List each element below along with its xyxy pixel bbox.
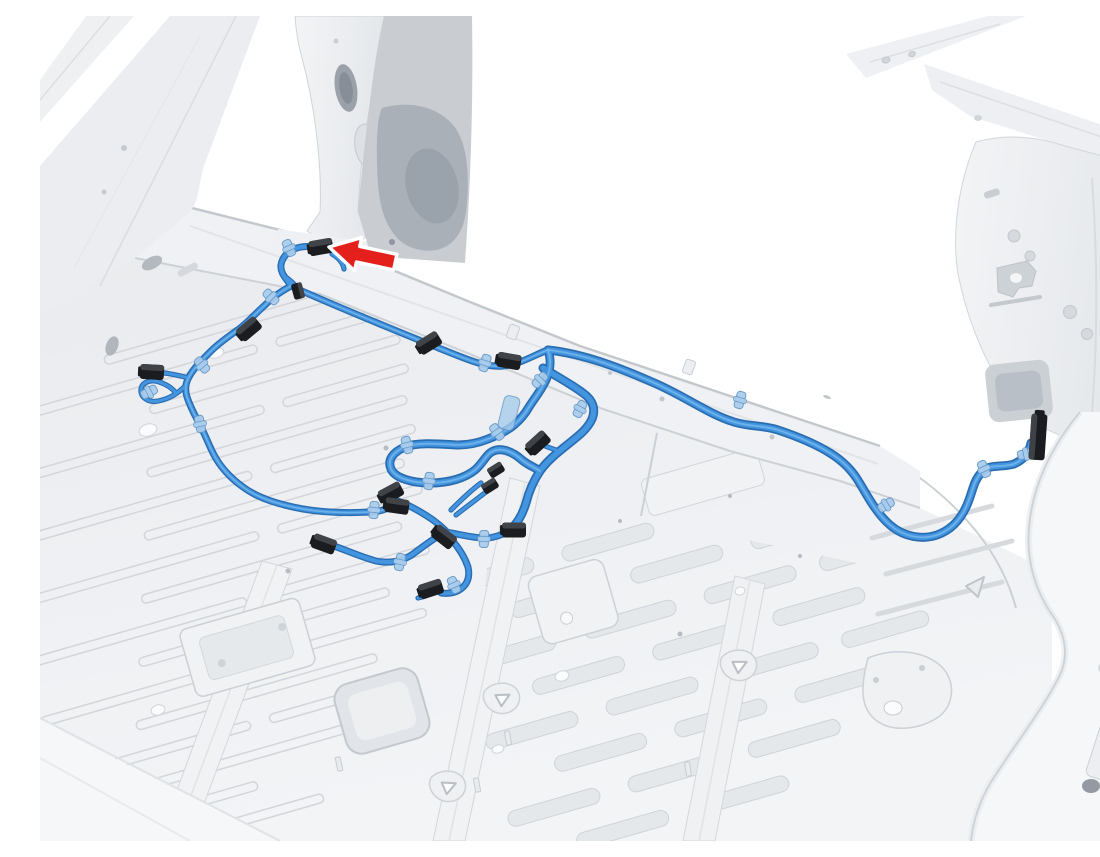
harness-clip: [477, 530, 491, 547]
illustration-canvas: [40, 16, 1100, 841]
c-pillar: [956, 137, 1100, 446]
service-illustration: [40, 16, 1100, 841]
harness-connector: [500, 523, 526, 538]
harness-connector: [138, 364, 165, 380]
